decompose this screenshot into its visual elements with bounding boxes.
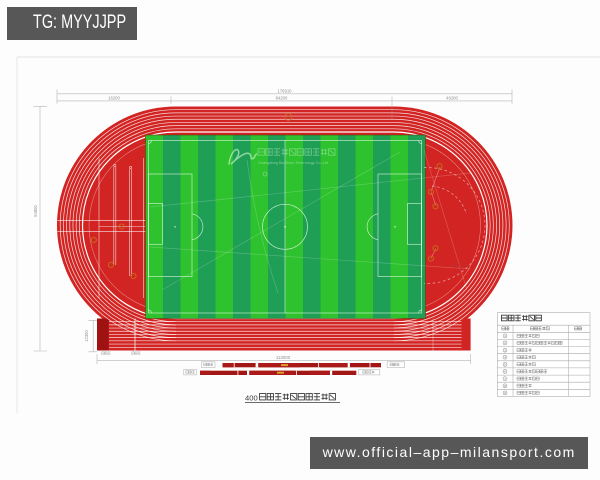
svg-text:7: 7	[133, 274, 135, 278]
svg-text:176910: 176910	[278, 88, 293, 93]
svg-text:8: 8	[435, 205, 437, 209]
svg-text:4: 4	[121, 225, 123, 229]
svg-text:84200: 84200	[276, 96, 288, 101]
svg-text:54800: 54800	[33, 205, 38, 217]
svg-text:400: 400	[245, 393, 258, 402]
svg-text:6: 6	[110, 263, 112, 267]
svg-text:2: 2	[439, 165, 441, 169]
svg-text:6: 6	[430, 257, 432, 261]
svg-text:3: 3	[430, 190, 432, 194]
svg-text:12300: 12300	[84, 330, 89, 342]
svg-text:9: 9	[435, 247, 437, 251]
svg-text:46200: 46200	[446, 96, 458, 101]
svg-text:5: 5	[93, 238, 95, 242]
svg-text:Guangdong BaoShun Technology C: Guangdong BaoShun Technology Co.,Ltd	[258, 161, 328, 165]
svg-text:113000: 113000	[276, 355, 291, 360]
svg-text:1: 1	[287, 115, 289, 119]
svg-text:16200: 16200	[108, 96, 120, 101]
